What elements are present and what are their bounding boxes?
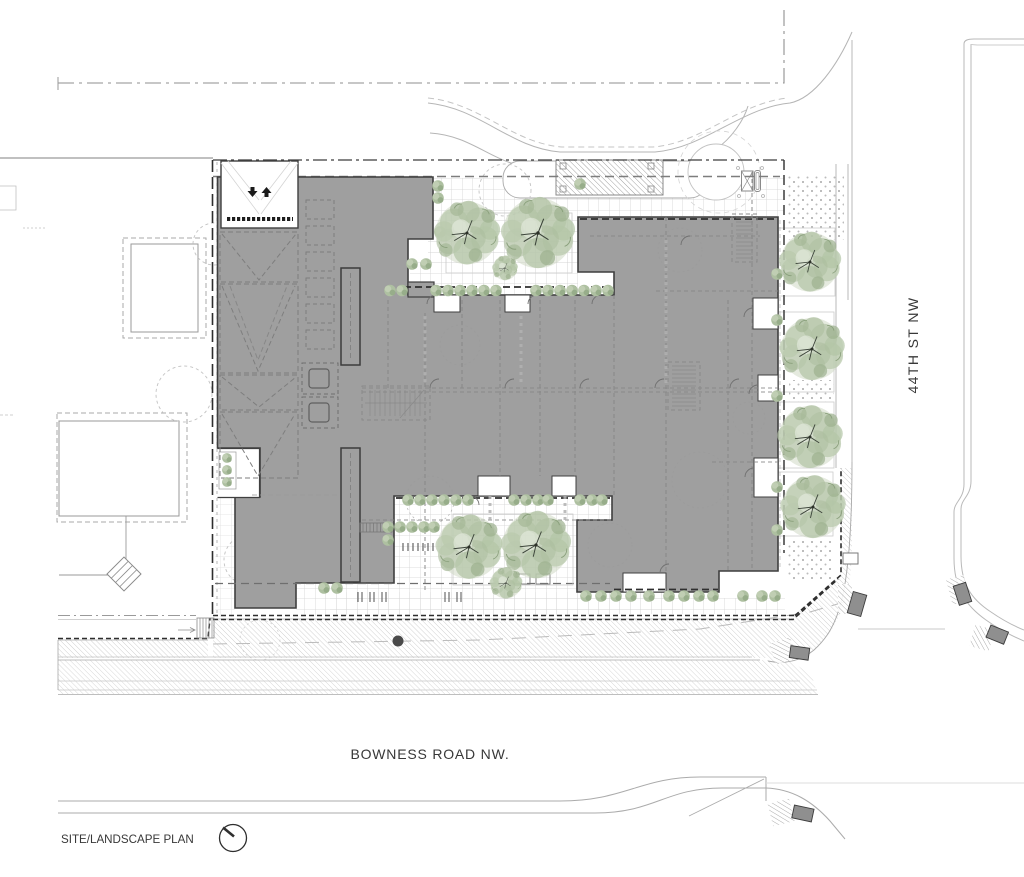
svg-text:BOWNESS ROAD NW.: BOWNESS ROAD NW. xyxy=(350,746,509,762)
svg-text:SITE/LANDSCAPE PLAN: SITE/LANDSCAPE PLAN xyxy=(61,833,194,846)
svg-text:44TH ST NW: 44TH ST NW xyxy=(905,297,921,394)
